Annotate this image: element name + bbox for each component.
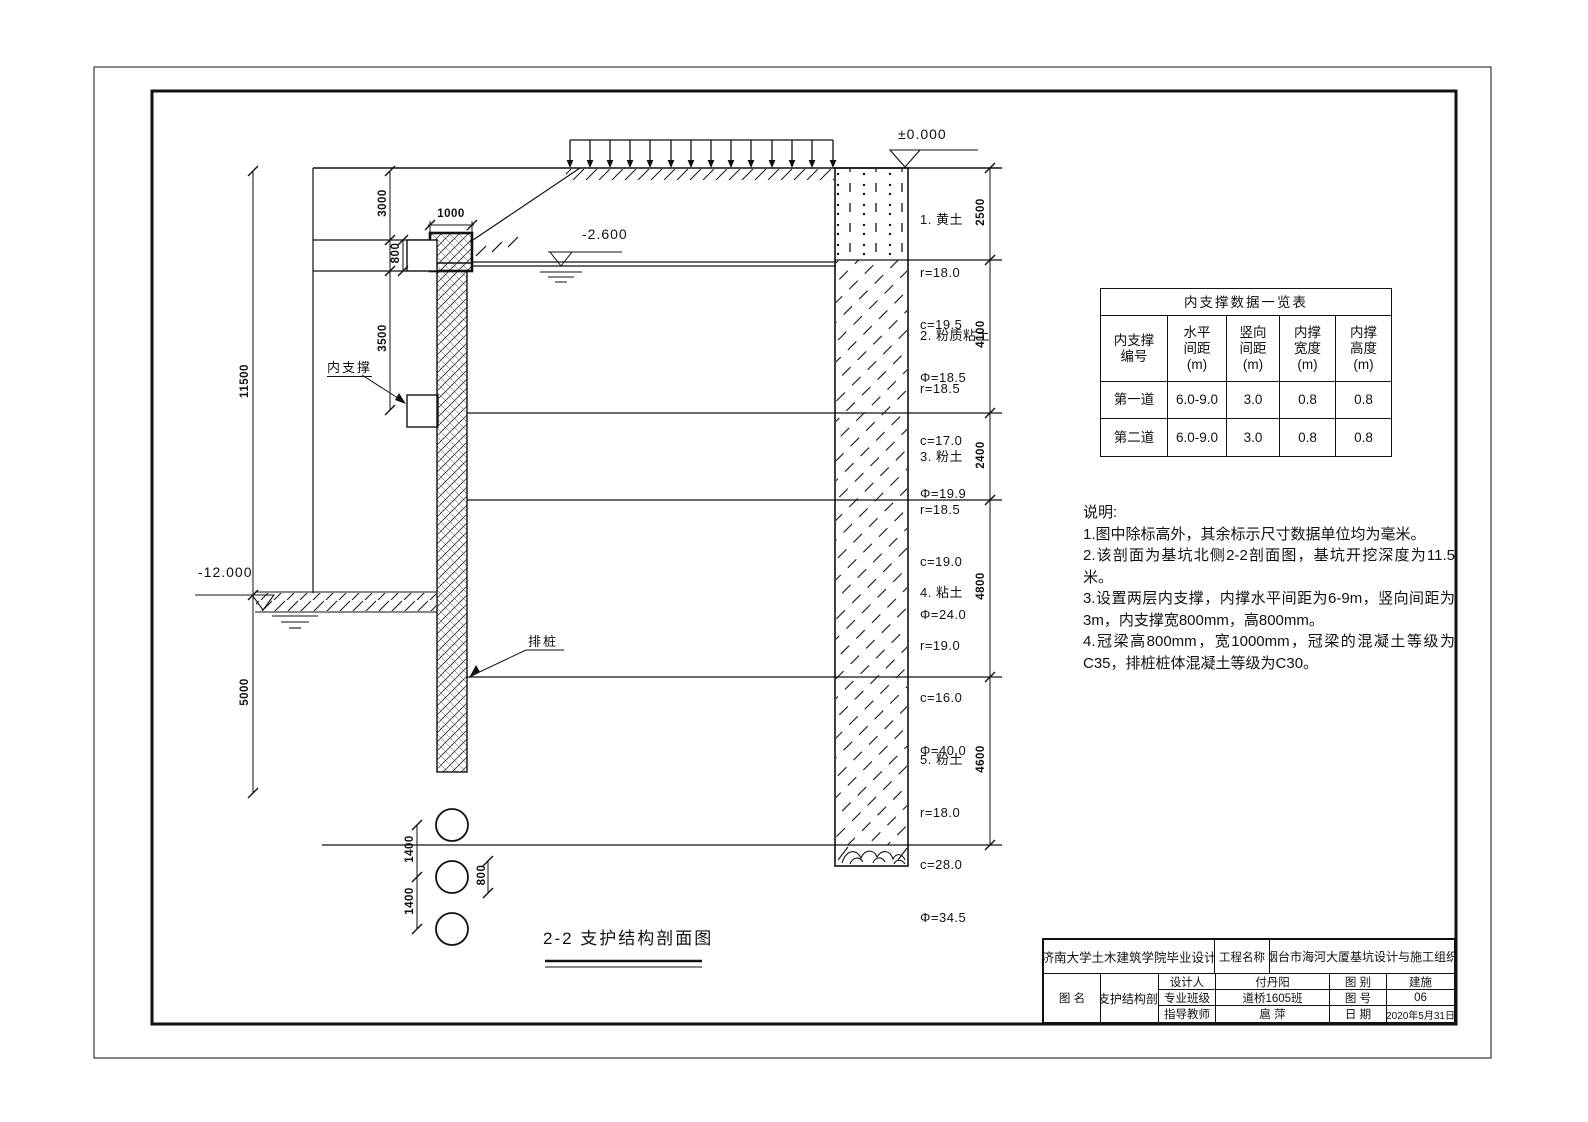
soil-layer-r: r=18.0 bbox=[920, 264, 966, 282]
notes-heading: 说明: bbox=[1083, 502, 1455, 524]
inner-support-2 bbox=[407, 395, 438, 427]
dim-pile-800: 800 bbox=[476, 853, 488, 897]
category-value: 建施 bbox=[1387, 974, 1454, 990]
dim-crown-800: 800 bbox=[390, 231, 402, 275]
dim-left-11500: 11500 bbox=[239, 359, 251, 403]
dim-right-4100: 4100 bbox=[975, 312, 987, 356]
soil-layer-phi: Φ=34.5 bbox=[920, 909, 966, 927]
drawing-name-label: 图 名 bbox=[1044, 974, 1101, 1022]
soil-layer-name: 3. 粉土 bbox=[920, 448, 966, 466]
dim-right-2500: 2500 bbox=[975, 190, 987, 234]
pile-callout: 排桩 bbox=[528, 631, 558, 650]
advisor-label: 指导教师 bbox=[1159, 1006, 1216, 1022]
soil-layer-r: r=18.5 bbox=[920, 501, 966, 519]
col-header: 水平 间距 (m) bbox=[1168, 316, 1227, 382]
dim-left-5000: 5000 bbox=[239, 670, 251, 714]
note-item: 2.该剖面为基坑北侧2-2剖面图，基坑开挖深度为11.5米。 bbox=[1083, 545, 1455, 588]
table-cell: 3.0 bbox=[1227, 382, 1280, 419]
dim-1400-b: 1400 bbox=[404, 879, 416, 923]
pit-bottom-label: -12.000 bbox=[198, 564, 252, 580]
dim-1400-a: 1400 bbox=[404, 827, 416, 871]
drawing-sheet: ±0.000 -2.600 -12.000 内支撑 排桩 1. 黄土 r=18.… bbox=[0, 0, 1588, 1122]
col-header: 内撑 高度 (m) bbox=[1336, 316, 1391, 382]
col-header: 竖向 间距 (m) bbox=[1227, 316, 1280, 382]
soil-layer-c: c=28.0 bbox=[920, 856, 966, 874]
project-name: 烟台市海河大厦基坑设计与施工组织 bbox=[1270, 940, 1454, 973]
inner-support-data-table: 内支撑数据一览表 内支撑 编号 水平 间距 (m) 竖向 间距 (m) 内撑 宽… bbox=[1100, 288, 1392, 457]
soil-layer-name: 5. 粉土 bbox=[920, 751, 966, 769]
date-value: 2020年5月31日 bbox=[1387, 1006, 1454, 1022]
col-header: 内支撑 编号 bbox=[1101, 316, 1168, 382]
retaining-pile bbox=[437, 271, 467, 772]
dim-right-2400: 2400 bbox=[975, 433, 987, 477]
advisor-name: 扈 萍 bbox=[1216, 1006, 1330, 1022]
inner-support-callout-text: 内支撑 bbox=[327, 360, 372, 377]
elevation-zero-marker bbox=[890, 150, 978, 167]
caption-underline bbox=[545, 961, 702, 967]
pile-section-circles bbox=[436, 809, 468, 945]
dim-1000: 1000 bbox=[429, 208, 473, 220]
table-cell: 第二道 bbox=[1101, 419, 1168, 456]
table-cell: 0.8 bbox=[1280, 419, 1336, 456]
table-grid: 内支撑 编号 水平 间距 (m) 竖向 间距 (m) 内撑 宽度 (m) 内撑 … bbox=[1101, 316, 1391, 456]
class-name: 道桥1605班 bbox=[1216, 990, 1330, 1006]
notes-block: 说明: 1.图中除标高外，其余标示尺寸数据单位均为毫米。 2.该剖面为基坑北侧2… bbox=[1083, 502, 1455, 674]
dim-3000: 3000 bbox=[377, 181, 389, 225]
title-block: 济南大学土木建筑学院毕业设计 工程名称 烟台市海河大厦基坑设计与施工组织 设计人… bbox=[1042, 938, 1456, 1024]
designer-label: 设计人 bbox=[1159, 974, 1216, 990]
inner-support-callout: 内支撑 bbox=[327, 357, 372, 376]
water-table-marker bbox=[540, 252, 622, 282]
soil-layer-c: c=16.0 bbox=[920, 689, 966, 707]
soil-profile-column bbox=[835, 168, 908, 866]
drawing-caption: 2-2 支护结构剖面图 bbox=[543, 924, 713, 949]
table-cell: 第一道 bbox=[1101, 382, 1168, 419]
note-item: 1.图中除标高外，其余标示尺寸数据单位均为毫米。 bbox=[1083, 524, 1455, 546]
water-level-label: -2.600 bbox=[582, 226, 628, 242]
table-cell: 3.0 bbox=[1227, 419, 1280, 456]
surcharge-load-arrows bbox=[566, 140, 836, 181]
soil-layer-r: r=18.0 bbox=[920, 804, 966, 822]
drawing-name: 2-2 支护结构剖面图 bbox=[1101, 974, 1159, 1022]
boulder-symbols bbox=[838, 847, 907, 864]
sheet-no-value: 06 bbox=[1387, 990, 1454, 1006]
dim-right-4600: 4600 bbox=[975, 737, 987, 781]
note-item: 3.设置两层内支撑，内撑水平间距为6-9m，竖向间距为3m，内支撑宽800mm，… bbox=[1083, 588, 1455, 631]
university-name: 济南大学土木建筑学院毕业设计 bbox=[1044, 940, 1215, 973]
project-name-label: 工程名称 bbox=[1215, 940, 1270, 973]
soil-layer-5: 5. 粉土 r=18.0 c=28.0 Φ=34.5 bbox=[920, 716, 966, 961]
table-cell: 6.0-9.0 bbox=[1168, 382, 1227, 419]
title-block-row1: 济南大学土木建筑学院毕业设计 工程名称 烟台市海河大厦基坑设计与施工组织 bbox=[1044, 940, 1454, 974]
sheet-no-label: 图 号 bbox=[1330, 990, 1387, 1006]
table-cell: 0.8 bbox=[1336, 382, 1391, 419]
class-label: 专业班级 bbox=[1159, 990, 1216, 1006]
soil-layer-name: 1. 黄土 bbox=[920, 211, 966, 229]
soil-layer-r: r=18.5 bbox=[920, 380, 990, 398]
table-cell: 0.8 bbox=[1336, 419, 1391, 456]
elevation-zero-label: ±0.000 bbox=[898, 126, 947, 142]
designer-name: 付丹阳 bbox=[1216, 974, 1330, 990]
title-block-grid: 设计人 付丹阳 图 名 2-2 支护结构剖面图 图 别 建施 专业班级 道桥16… bbox=[1044, 974, 1454, 1022]
table-cell: 6.0-9.0 bbox=[1168, 419, 1227, 456]
note-item: 4.冠梁高800mm，宽1000mm，冠梁的混凝土等级为C35，排桩桩体混凝土等… bbox=[1083, 631, 1455, 674]
soil-layer-r: r=19.0 bbox=[920, 637, 966, 655]
dim-3500: 3500 bbox=[377, 316, 389, 360]
pit-bottom bbox=[195, 592, 437, 628]
table-cell: 0.8 bbox=[1280, 382, 1336, 419]
col-header: 内撑 宽度 (m) bbox=[1280, 316, 1336, 382]
ground-hatch bbox=[566, 169, 834, 181]
inner-support-1 bbox=[407, 240, 437, 271]
soil-layer-name: 4. 粘土 bbox=[920, 584, 966, 602]
table-title: 内支撑数据一览表 bbox=[1101, 289, 1391, 316]
dim-right-4800: 4800 bbox=[975, 564, 987, 608]
category-label: 图 别 bbox=[1330, 974, 1387, 990]
date-label: 日 期 bbox=[1330, 1006, 1387, 1022]
